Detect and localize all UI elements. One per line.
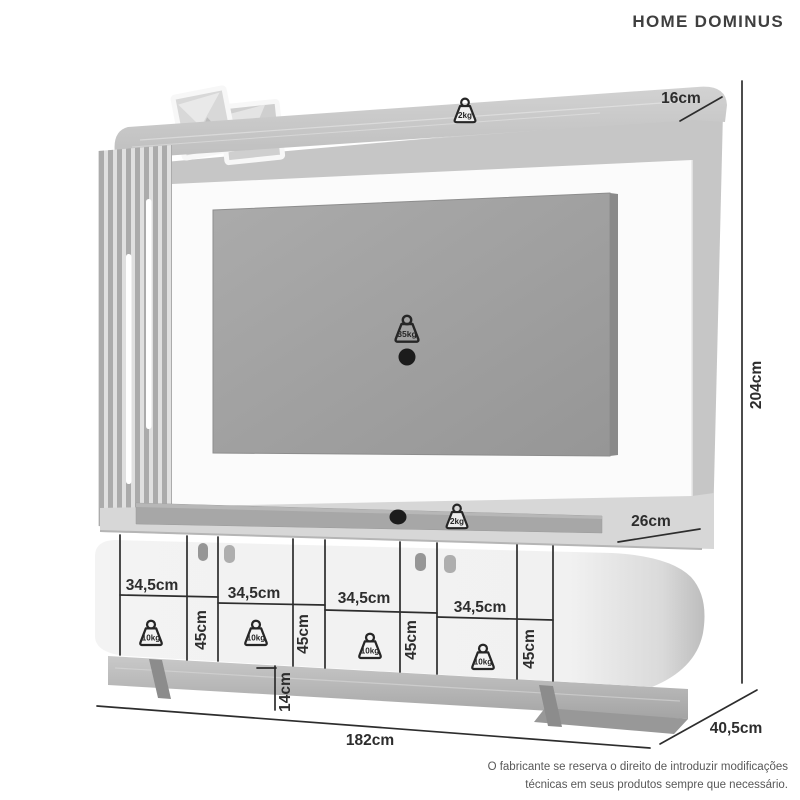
product-dimension-diagram: HOME DOMINUS 16cm 204cm 26cm 34,5cm 34,5…: [0, 0, 800, 800]
svg-text:35kg: 35kg: [397, 329, 417, 339]
dim-compartment-width-3: 34,5cm: [338, 590, 391, 608]
slat-panel: [98, 145, 172, 532]
weight-icon-compartment-2: 10kg: [238, 619, 274, 650]
weight-icon-shelf: 2kg: [440, 503, 474, 533]
svg-text:10kg: 10kg: [361, 647, 379, 656]
dim-top-depth: 16cm: [661, 90, 701, 108]
weight-icon-top-panel: 2kg: [448, 97, 482, 127]
dim-compartment-height-3: 45cm: [403, 620, 421, 660]
product-title: HOME DOMINUS: [632, 12, 784, 32]
dim-compartment-height-2: 45cm: [295, 614, 313, 654]
dim-compartment-height-1: 45cm: [193, 610, 211, 650]
svg-text:2kg: 2kg: [458, 111, 472, 120]
furniture-illustration: [0, 0, 800, 800]
dim-total-width: 182cm: [346, 732, 394, 750]
disclaimer-line-2: técnicas em seus produtos sempre que nec…: [488, 776, 788, 794]
dim-compartment-width-4: 34,5cm: [454, 599, 507, 617]
svg-text:10kg: 10kg: [247, 634, 265, 643]
speaker-dot: [390, 510, 407, 525]
svg-text:10kg: 10kg: [474, 658, 492, 667]
svg-text:10kg: 10kg: [142, 634, 160, 643]
dim-total-depth: 40,5cm: [710, 720, 763, 738]
dim-base-height: 14cm: [277, 672, 295, 712]
weight-icon-tv: 35kg: [388, 314, 426, 347]
weight-icon-compartment-1: 10kg: [133, 619, 169, 650]
svg-text:2kg: 2kg: [450, 517, 464, 526]
disclaimer-line-1: O fabricante se reserva o direito de int…: [488, 758, 788, 776]
dim-shelf-depth: 26cm: [631, 513, 671, 531]
dim-compartment-width-1: 34,5cm: [126, 577, 179, 595]
dim-compartment-width-2: 34,5cm: [228, 585, 281, 603]
dim-compartment-height-4: 45cm: [521, 629, 539, 669]
dim-total-height: 204cm: [748, 361, 766, 409]
tv-mount-dot: [399, 349, 416, 366]
weight-icon-compartment-4: 10kg: [465, 643, 501, 674]
manufacturer-disclaimer: O fabricante se reserva o direito de int…: [488, 758, 788, 795]
weight-icon-compartment-3: 10kg: [352, 632, 388, 663]
